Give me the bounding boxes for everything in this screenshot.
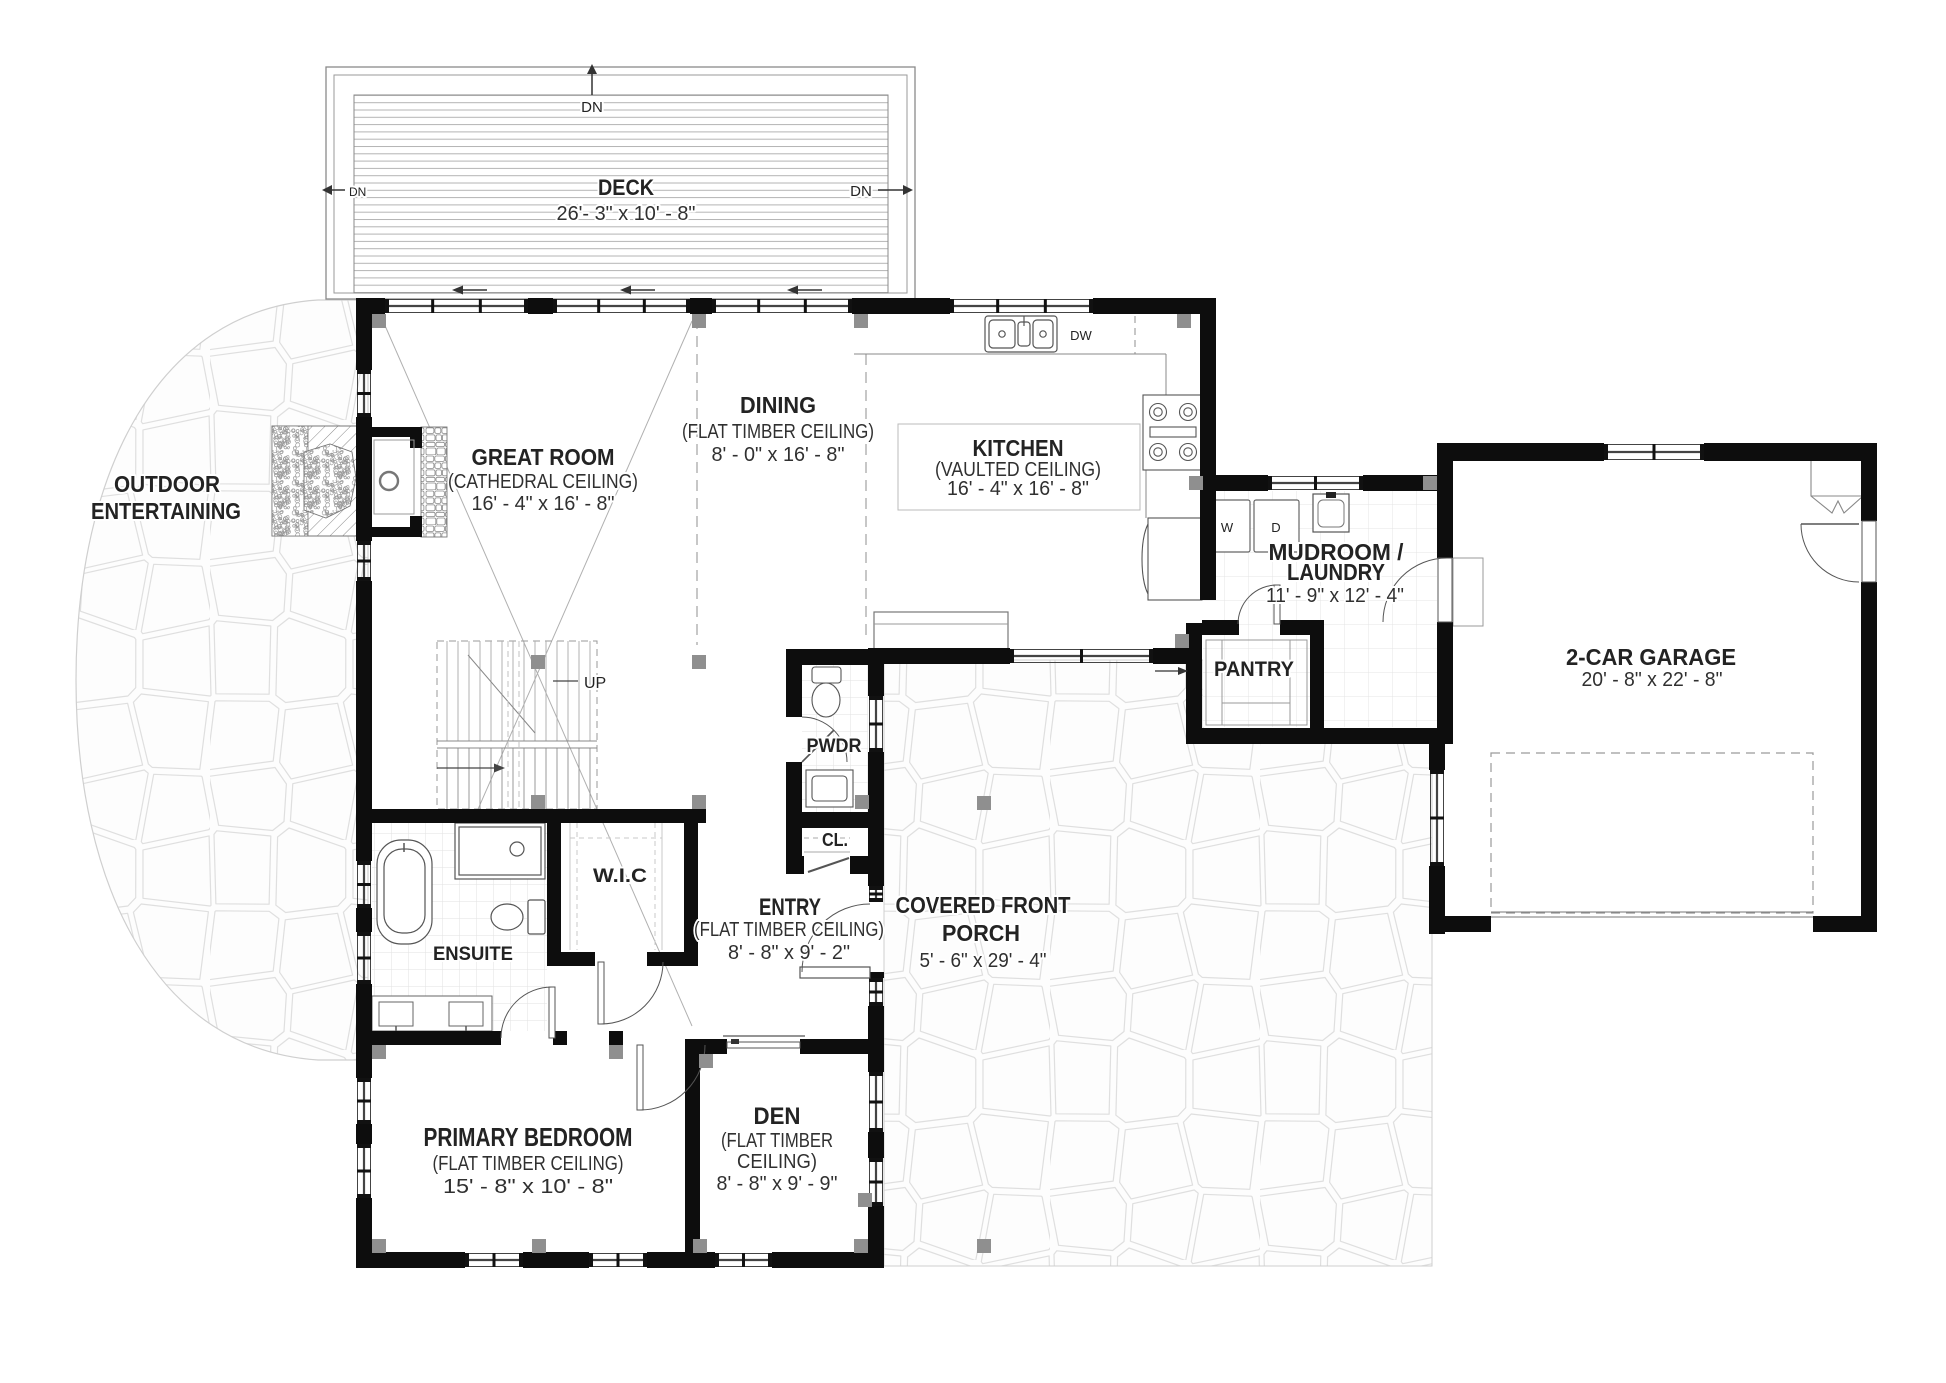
svg-text:(FLAT TIMBER CEILING): (FLAT TIMBER CEILING) <box>694 919 884 941</box>
svg-text:UP: UP <box>584 675 606 692</box>
svg-text:16' - 4" x 16' - 8": 16' - 4" x 16' - 8" <box>947 478 1089 500</box>
svg-text:OUTDOOR: OUTDOOR <box>114 471 220 497</box>
svg-text:20' - 8" x 22' - 8": 20' - 8" x 22' - 8" <box>1582 669 1723 691</box>
svg-text:GREAT ROOM: GREAT ROOM <box>472 444 615 470</box>
svg-text:D: D <box>1271 520 1280 535</box>
svg-text:8' - 8" x 9' - 9": 8' - 8" x 9' - 9" <box>717 1173 838 1195</box>
svg-text:5' - 6" x 29' - 4": 5' - 6" x 29' - 4" <box>920 950 1047 972</box>
svg-text:(FLAT TIMBER CEILING): (FLAT TIMBER CEILING) <box>433 1153 624 1175</box>
svg-text:11' - 9" x 12' - 4": 11' - 9" x 12' - 4" <box>1266 585 1404 607</box>
svg-text:DN: DN <box>349 185 366 199</box>
svg-text:ENTERTAINING: ENTERTAINING <box>91 498 241 524</box>
svg-text:2-CAR GARAGE: 2-CAR GARAGE <box>1566 644 1736 670</box>
svg-text:ENTRY: ENTRY <box>759 894 821 921</box>
svg-text:DINING: DINING <box>740 392 816 418</box>
svg-text:W: W <box>1221 520 1234 535</box>
svg-text:CEILING): CEILING) <box>737 1151 817 1173</box>
svg-text:COVERED FRONT: COVERED FRONT <box>896 892 1071 918</box>
svg-text:DW: DW <box>1070 328 1092 343</box>
svg-text:PRIMARY BEDROOM: PRIMARY BEDROOM <box>424 1122 633 1152</box>
svg-text:DEN: DEN <box>754 1103 801 1130</box>
svg-text:26'- 3" x 10' - 8": 26'- 3" x 10' - 8" <box>557 203 696 225</box>
svg-text:(CATHEDRAL CEILING): (CATHEDRAL CEILING) <box>448 471 638 493</box>
svg-text:15' - 8" x 10' - 8": 15' - 8" x 10' - 8" <box>443 1176 613 1198</box>
svg-text:W.I.C: W.I.C <box>593 866 647 887</box>
svg-text:(FLAT TIMBER: (FLAT TIMBER <box>721 1130 833 1152</box>
svg-text:PORCH: PORCH <box>942 920 1020 946</box>
svg-text:CL.: CL. <box>822 830 848 850</box>
svg-text:(FLAT TIMBER CEILING): (FLAT TIMBER CEILING) <box>682 421 874 443</box>
svg-text:KITCHEN: KITCHEN <box>973 435 1064 461</box>
svg-text:8' - 0" x 16' - 8": 8' - 0" x 16' - 8" <box>712 444 845 466</box>
svg-text:DN: DN <box>581 99 603 116</box>
svg-text:LAUNDRY: LAUNDRY <box>1287 559 1385 585</box>
svg-text:ENSUITE: ENSUITE <box>433 944 513 965</box>
svg-text:PANTRY: PANTRY <box>1214 658 1294 681</box>
svg-text:DN: DN <box>850 183 872 200</box>
svg-text:PWDR: PWDR <box>807 736 862 757</box>
svg-text:DECK: DECK <box>598 175 654 200</box>
svg-text:8' - 8" x 9' - 2": 8' - 8" x 9' - 2" <box>728 942 850 964</box>
svg-text:16' - 4" x 16' - 8": 16' - 4" x 16' - 8" <box>472 493 615 515</box>
